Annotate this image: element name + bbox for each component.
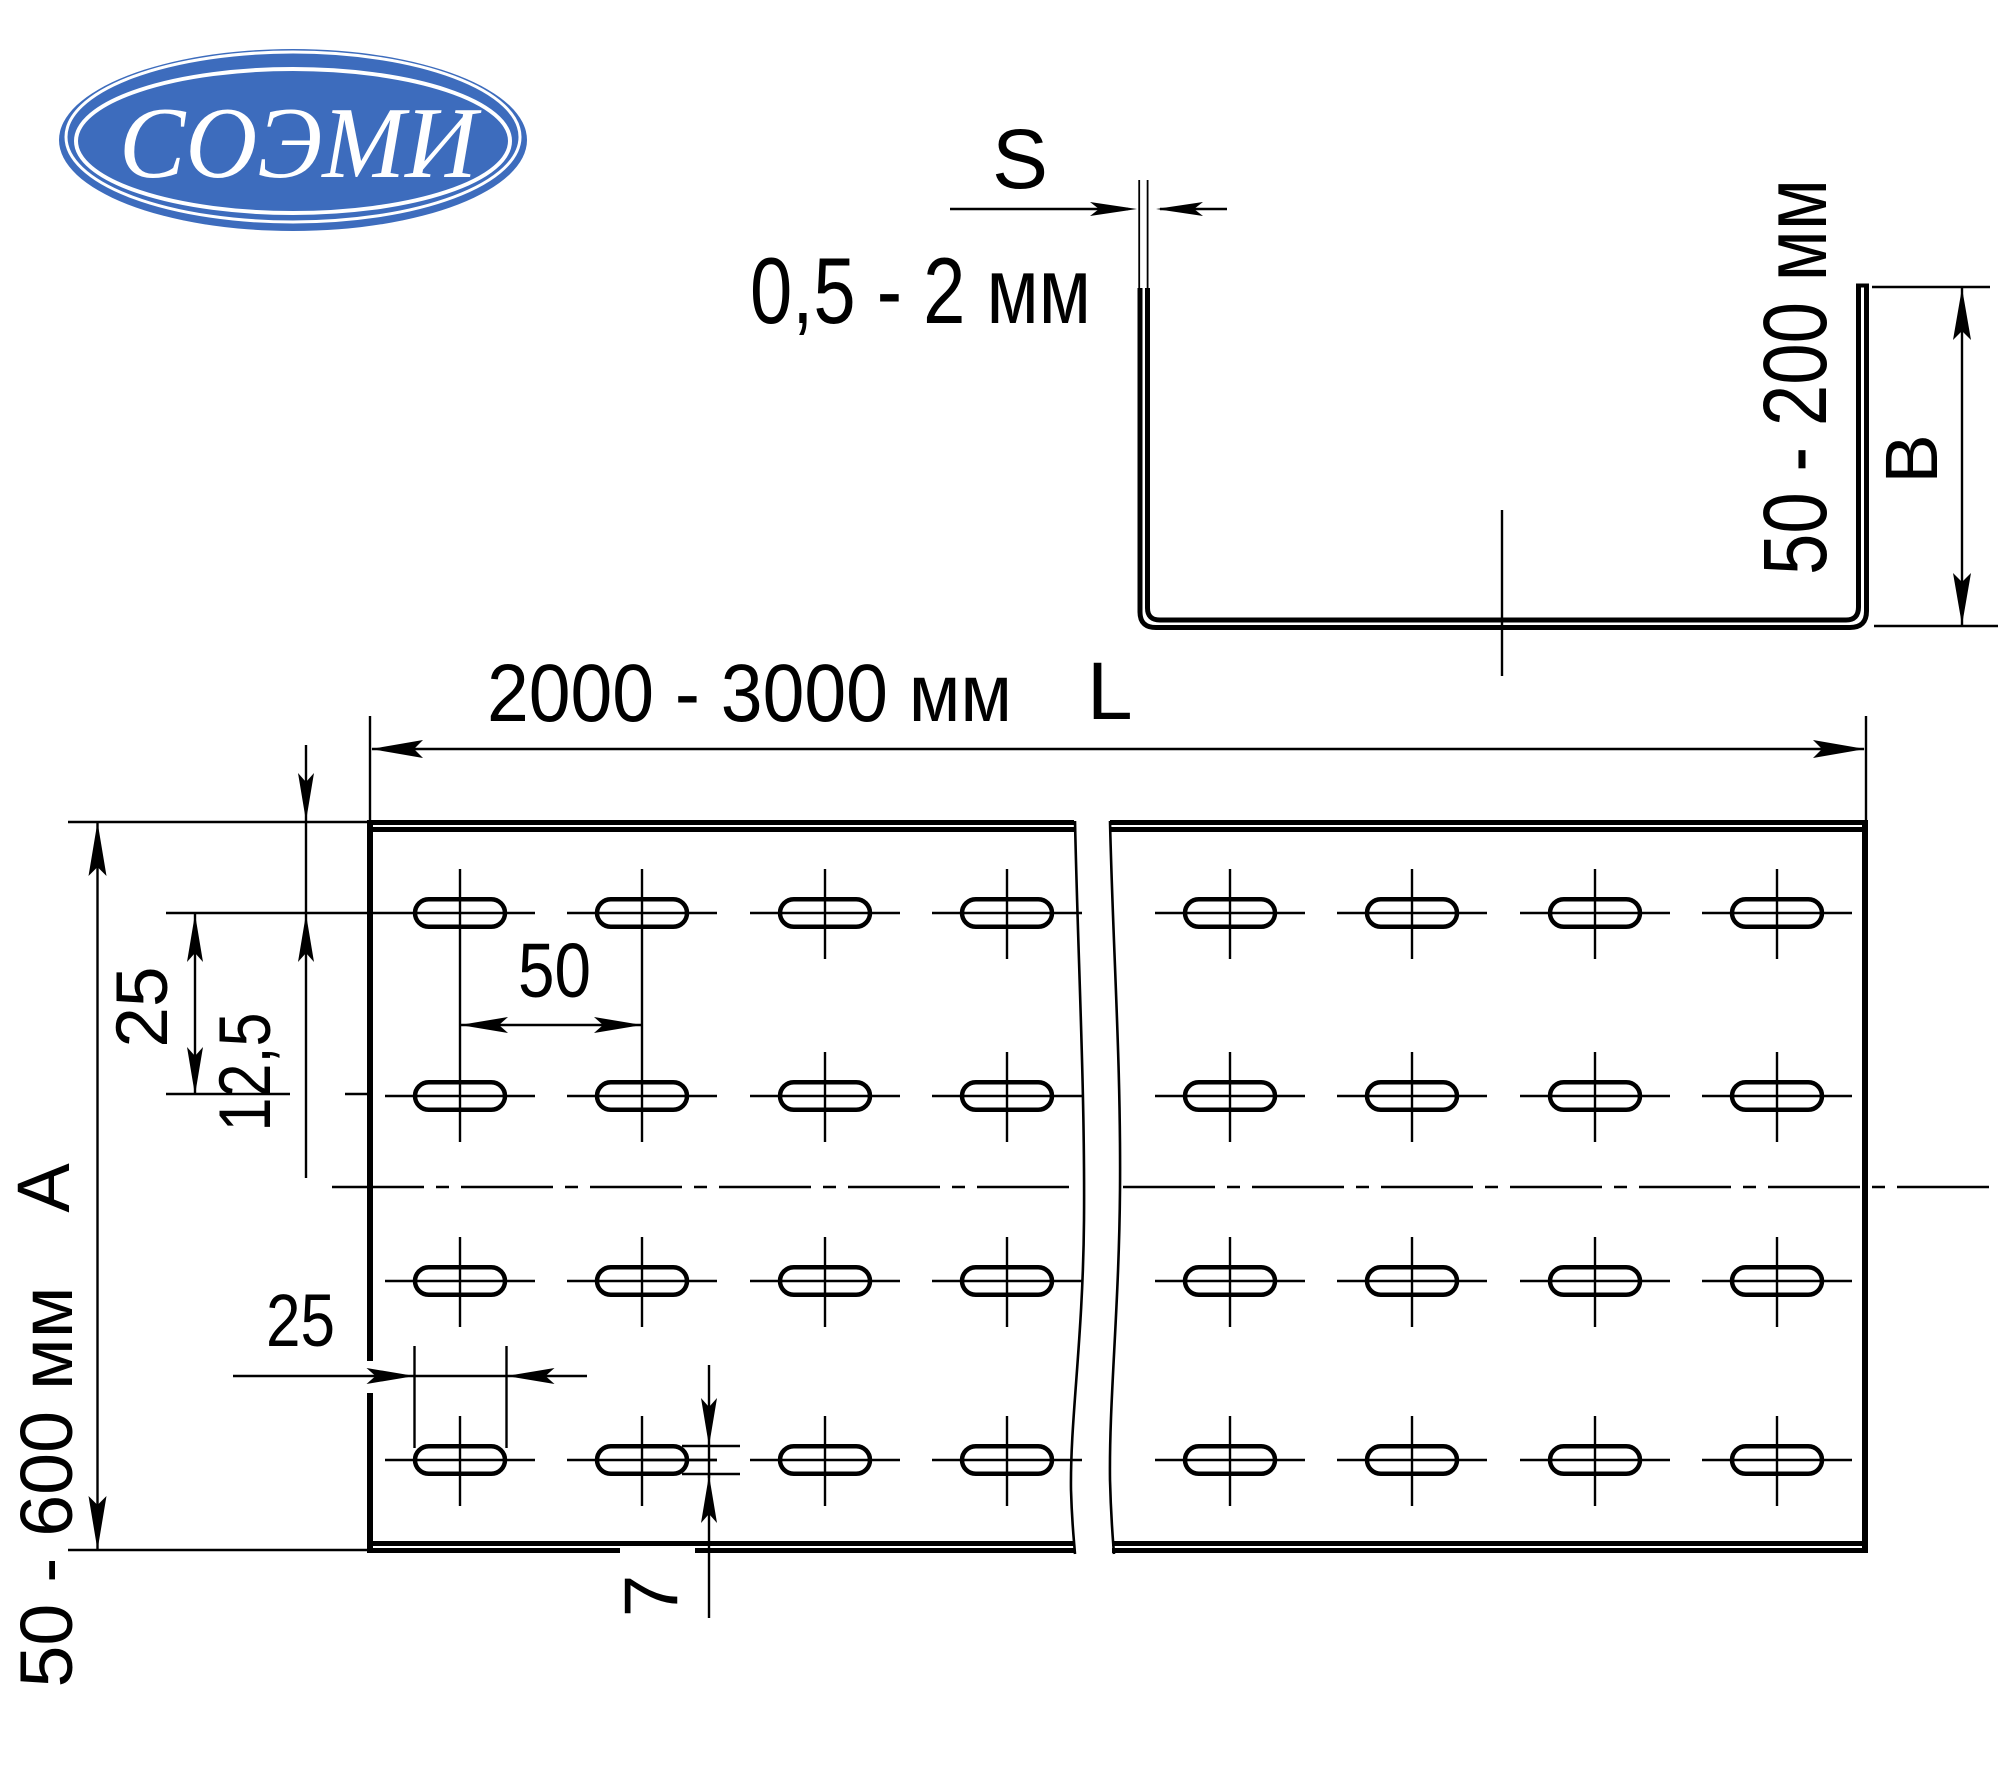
svg-text:25: 25: [266, 1279, 335, 1362]
svg-text:2000 - 3000 мм: 2000 - 3000 мм: [487, 648, 1012, 739]
svg-text:25: 25: [102, 966, 183, 1047]
svg-text:50 - 600 мм: 50 - 600 мм: [5, 1287, 88, 1688]
svg-text:B: B: [1870, 434, 1953, 483]
svg-text:СОЭМИ: СОЭМИ: [119, 87, 482, 200]
svg-text:0,5 - 2 мм: 0,5 - 2 мм: [750, 238, 1091, 343]
svg-text:50: 50: [518, 928, 591, 1014]
svg-text:12,5: 12,5: [205, 1013, 286, 1132]
svg-text:7: 7: [609, 1575, 694, 1617]
svg-text:50 - 200 мм: 50 - 200 мм: [1746, 179, 1846, 575]
svg-text:L: L: [1087, 646, 1133, 737]
svg-text:S: S: [992, 112, 1048, 206]
svg-text:A: A: [2, 1163, 85, 1213]
